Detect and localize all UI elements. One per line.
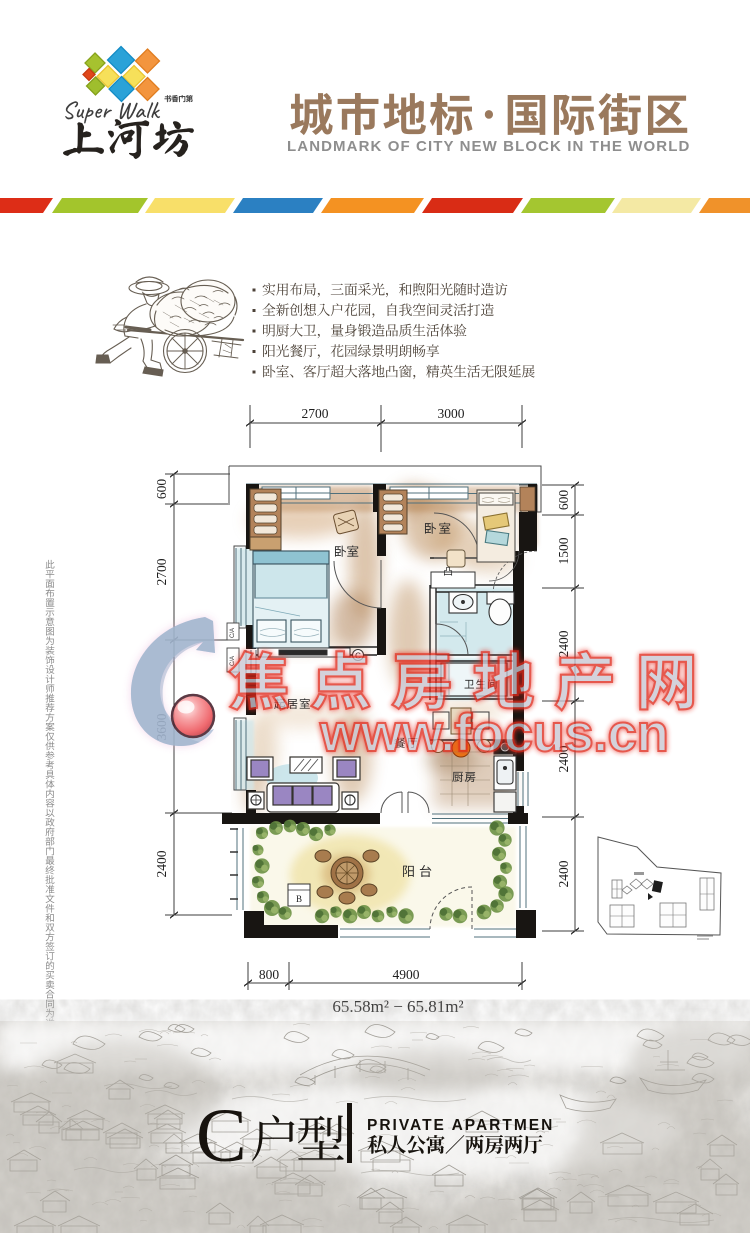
svg-text:www.focus.cn: www.focus.cn xyxy=(319,704,668,763)
svg-text:PRIVATE APARTMEN: PRIVATE APARTMEN xyxy=(367,1117,554,1134)
svg-text:2700: 2700 xyxy=(154,558,169,585)
svg-text:2700: 2700 xyxy=(302,406,329,421)
svg-text:2400: 2400 xyxy=(556,860,571,887)
svg-text:3000: 3000 xyxy=(438,406,465,421)
svg-text:C/A: C/A xyxy=(230,656,236,666)
svg-text:600: 600 xyxy=(556,490,571,511)
svg-text:1500: 1500 xyxy=(556,537,571,564)
svg-text:600: 600 xyxy=(154,479,169,500)
svg-text:C/A: C/A xyxy=(230,628,236,638)
svg-text:2400: 2400 xyxy=(556,630,571,657)
svg-text:65.58m² − 65.81m²: 65.58m² − 65.81m² xyxy=(332,997,463,1016)
svg-text:B: B xyxy=(296,894,302,904)
svg-text:4900: 4900 xyxy=(393,967,420,982)
svg-text:2400: 2400 xyxy=(154,850,169,877)
svg-text:LANDMARK OF CITY NEW BLOCK IN: LANDMARK OF CITY NEW BLOCK IN THE WORLD xyxy=(287,138,690,155)
svg-text:C: C xyxy=(196,1094,247,1178)
svg-text:800: 800 xyxy=(259,967,280,982)
